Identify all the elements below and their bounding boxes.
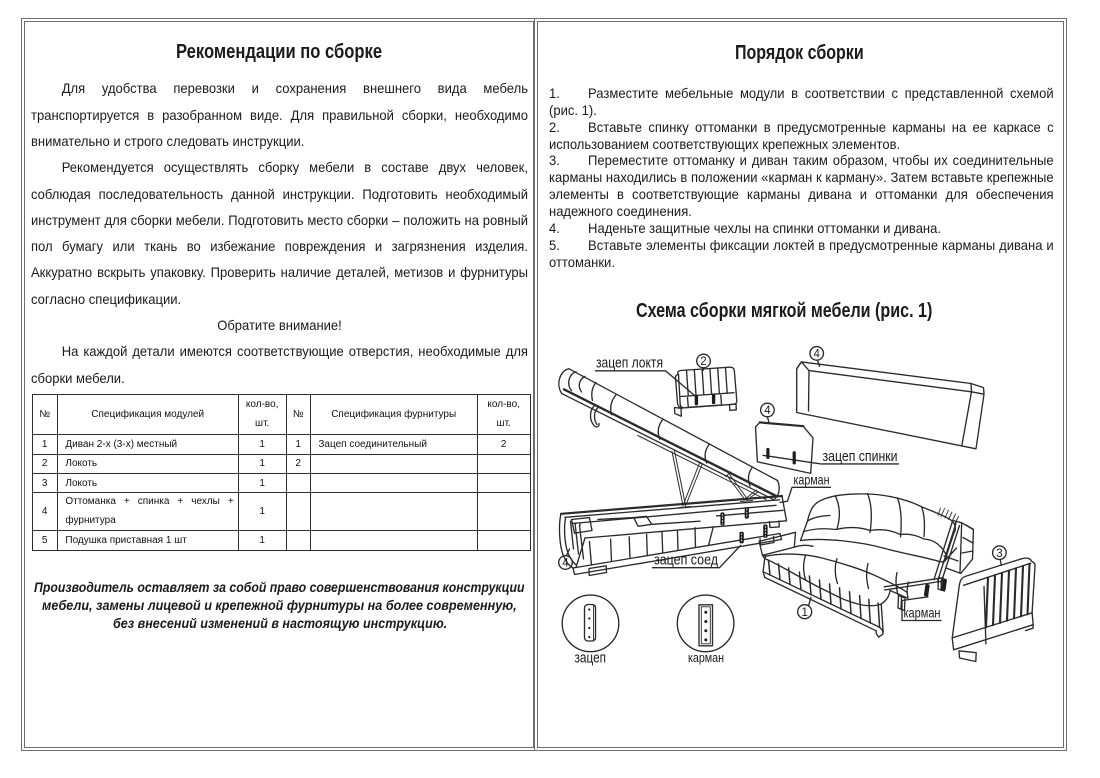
svg-text:4: 4 bbox=[813, 349, 820, 361]
svg-text:карман: карман bbox=[794, 471, 830, 487]
svg-text:зацеп: зацеп bbox=[575, 650, 607, 667]
svg-text:1: 1 bbox=[801, 607, 807, 619]
svg-text:2: 2 bbox=[700, 356, 706, 368]
svg-text:4: 4 bbox=[764, 405, 771, 417]
svg-text:зацеп локтя: зацеп локтя bbox=[596, 355, 663, 372]
svg-text:зацеп спинки: зацеп спинки bbox=[823, 448, 898, 465]
svg-text:карман: карман bbox=[904, 604, 941, 620]
svg-text:карман: карман bbox=[688, 650, 724, 665]
svg-text:зацеп соед: зацеп соед bbox=[654, 552, 718, 569]
svg-text:4: 4 bbox=[562, 558, 569, 570]
svg-text:3: 3 bbox=[996, 548, 1002, 560]
